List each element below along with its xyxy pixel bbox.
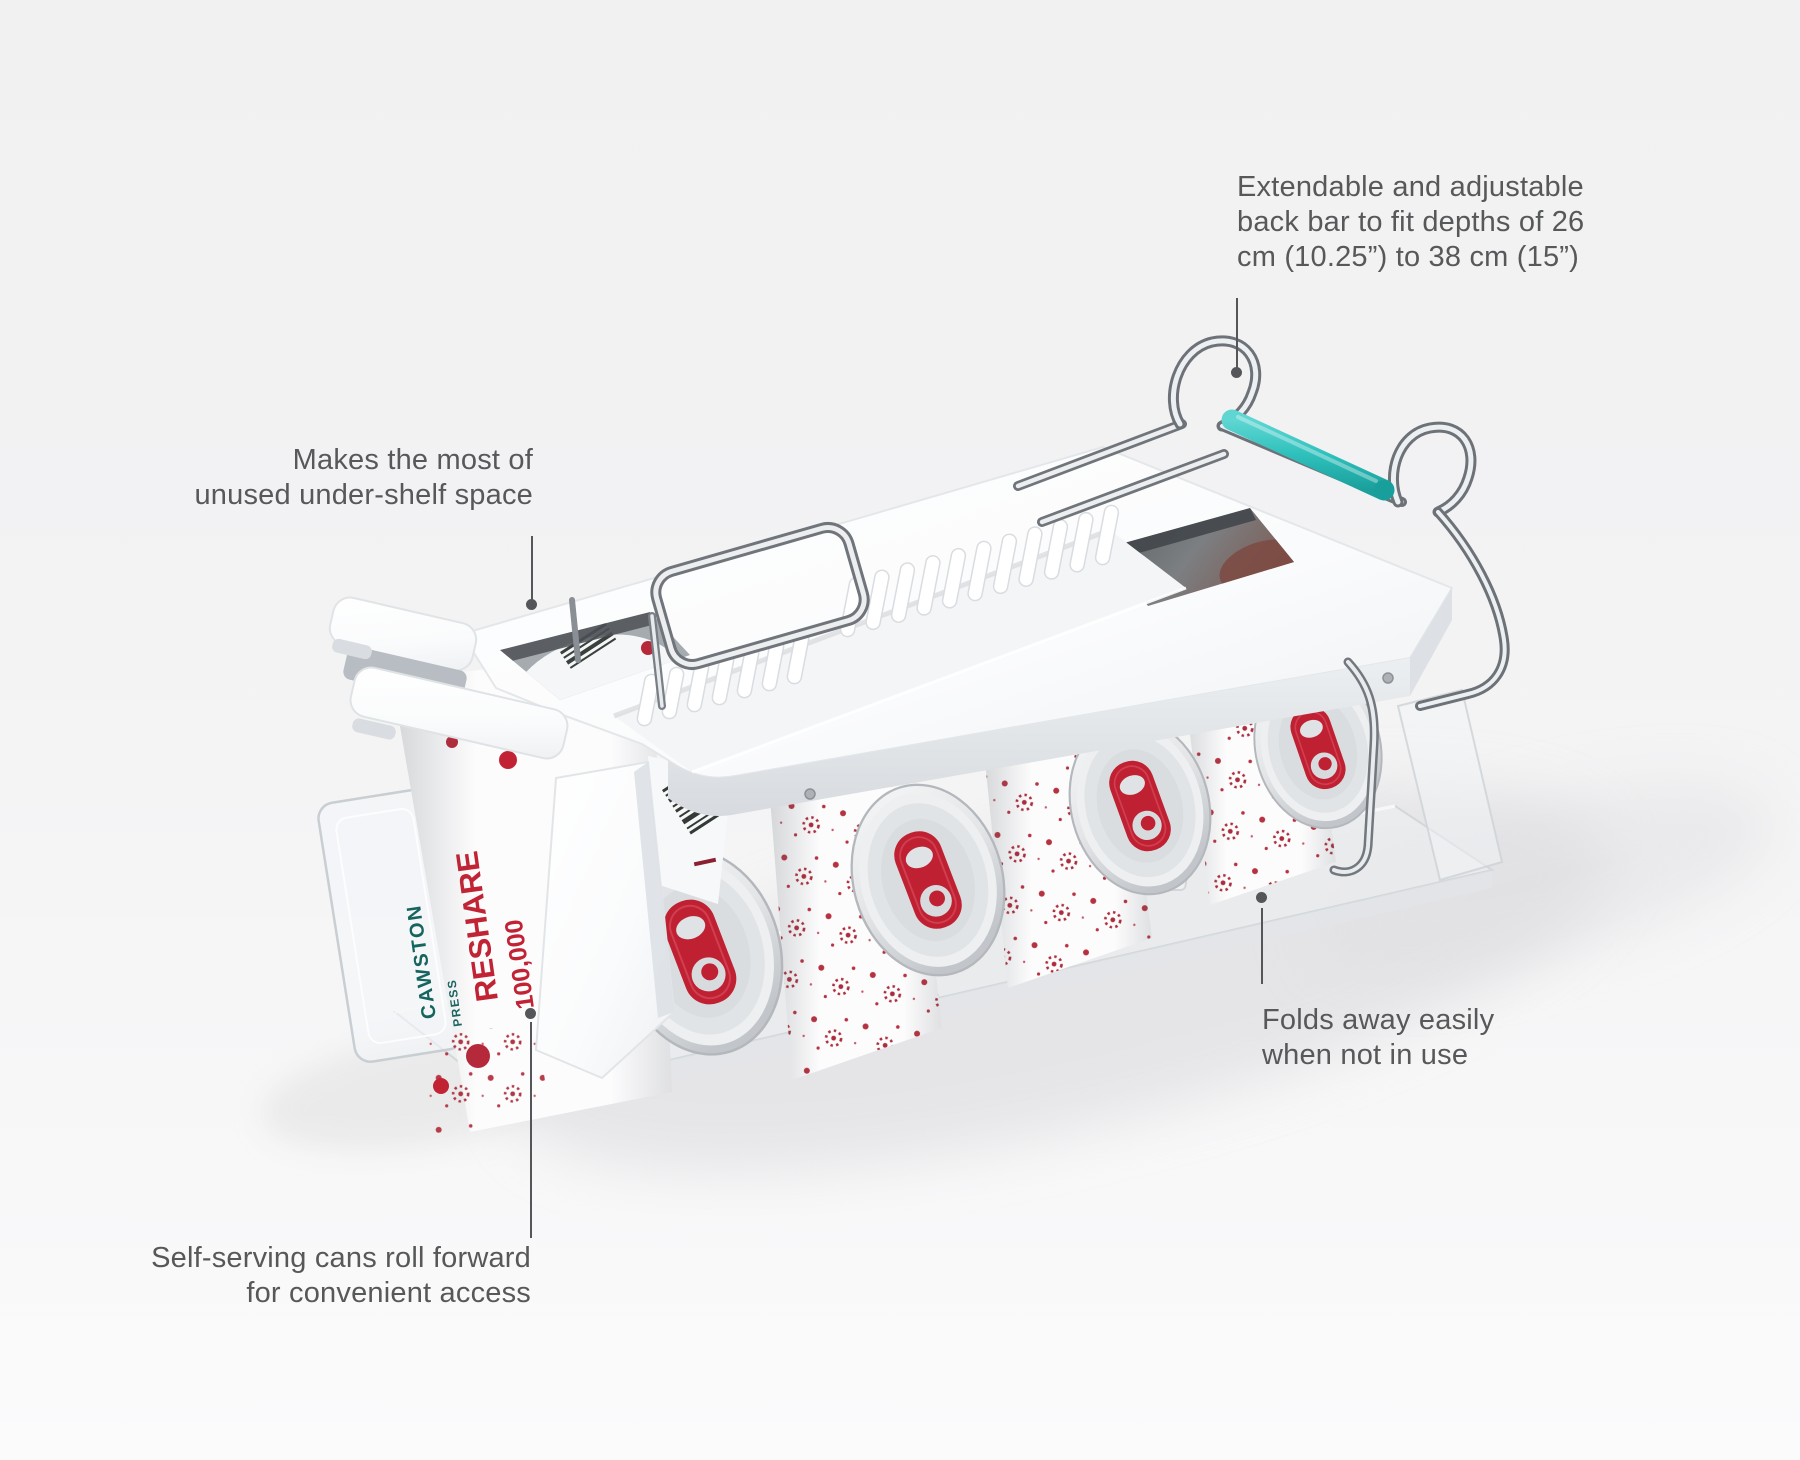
callout-under-shelf-line-2: unused under-shelf space [163,478,533,513]
callout-back-bar-pointer-dot [1231,367,1242,378]
callout-under-shelf-pointer-dot [526,599,537,610]
callout-self-serving: Self-serving cans roll forward for conve… [131,1241,531,1311]
callout-back-bar-line-3: cm (10.25”) to 38 cm (15”) [1237,240,1617,275]
screw [805,789,815,799]
callout-under-shelf-pointer-line [531,536,533,600]
callout-folds-away-line-1: Folds away easily [1262,1003,1582,1038]
back-bar-left-loop [1173,341,1255,426]
callout-self-serving-pointer-dot [525,1008,536,1019]
callout-self-serving-line-1: Self-serving cans roll forward [131,1241,531,1276]
callout-folds-away-pointer-dot [1256,892,1267,903]
screw [1383,673,1393,683]
product-infographic: CAWSTON PRESS RESHARE 100,000 [0,0,1800,1460]
callout-under-shelf: Makes the most of unused under-shelf spa… [163,443,533,513]
callout-folds-away: Folds away easily when not in use [1262,1003,1582,1073]
callout-folds-away-line-2: when not in use [1262,1038,1582,1073]
callout-back-bar-pointer-line [1236,298,1238,368]
teal-grip [1232,417,1394,500]
callout-folds-away-pointer-line [1261,908,1263,984]
callout-back-bar-line-2: back bar to fit depths of 26 [1237,205,1617,240]
callout-back-bar-line-1: Extendable and adjustable [1237,170,1617,205]
callout-under-shelf-line-1: Makes the most of [163,443,533,478]
callout-self-serving-line-2: for convenient access [131,1276,531,1311]
callout-back-bar: Extendable and adjustable back bar to fi… [1237,170,1617,275]
callout-self-serving-pointer-line [530,1022,532,1238]
